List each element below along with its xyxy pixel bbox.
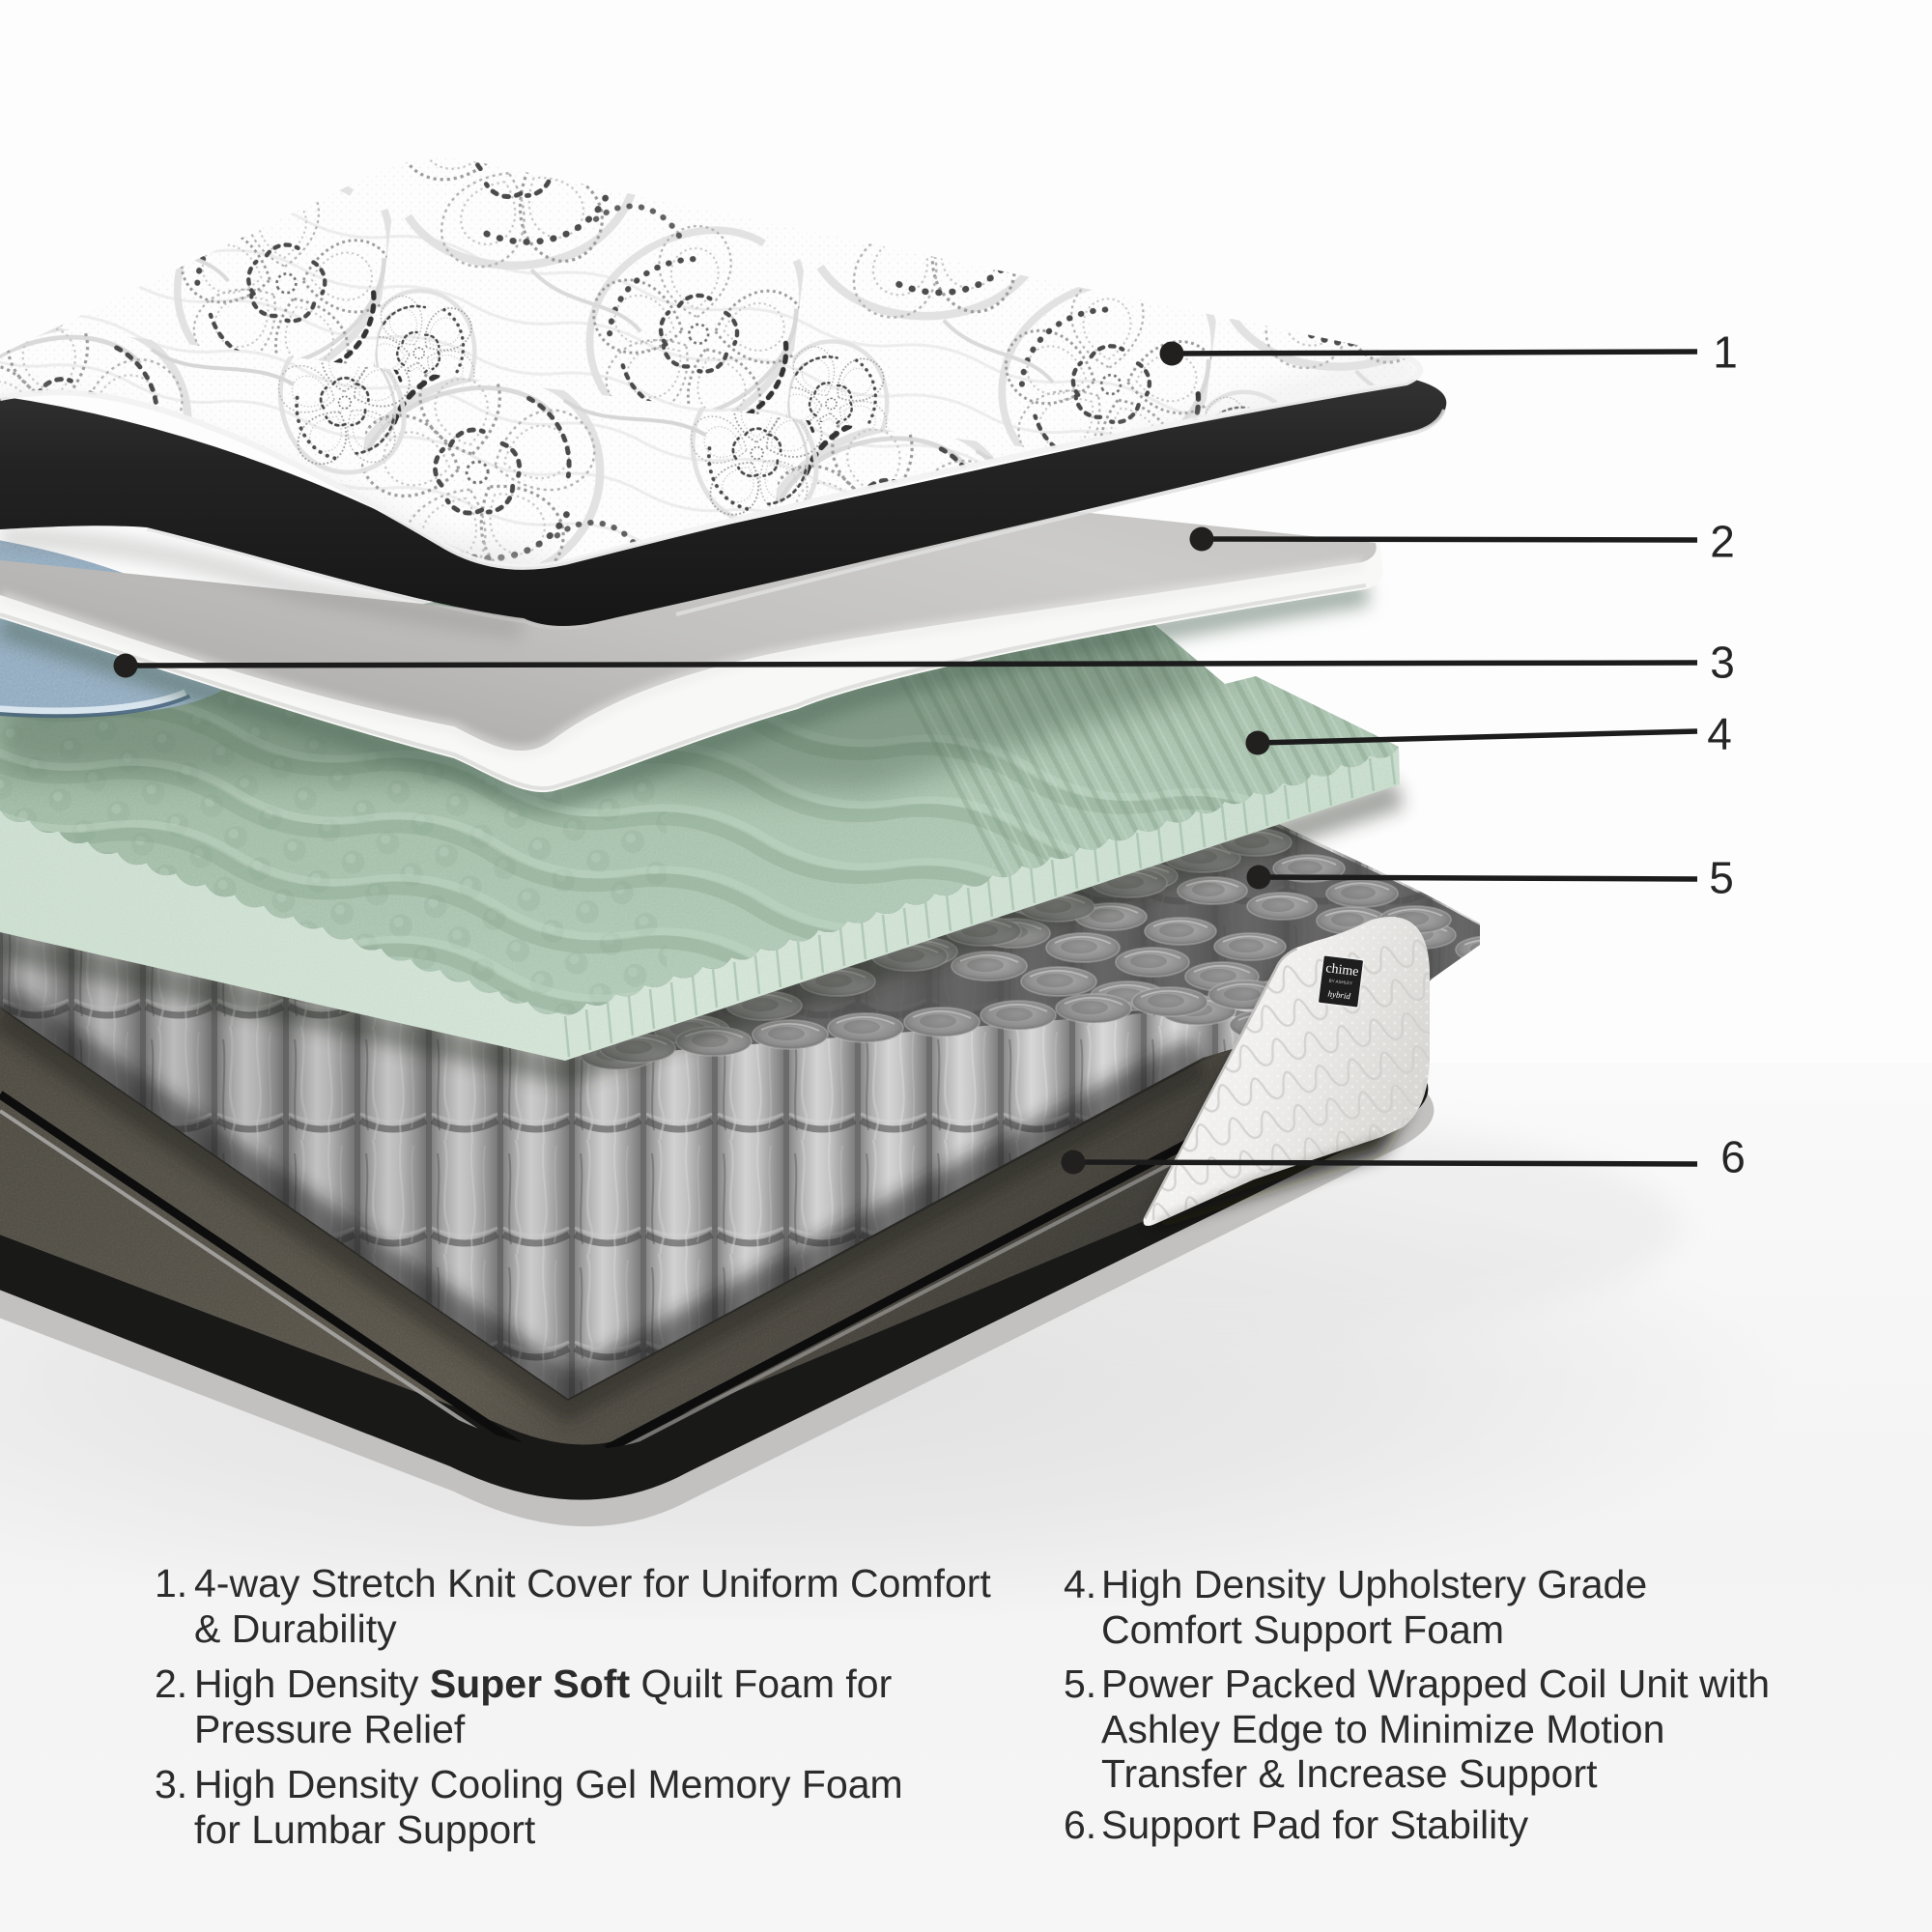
svg-text:Comfort Support Foam: Comfort Support Foam	[1101, 1607, 1504, 1652]
svg-text:5.: 5.	[1064, 1662, 1096, 1706]
svg-text:High Density Upholstery Grade: High Density Upholstery Grade	[1101, 1562, 1647, 1606]
svg-text:& Durability: & Durability	[194, 1606, 397, 1651]
svg-text:4: 4	[1707, 709, 1732, 759]
svg-text:4.: 4.	[1064, 1562, 1096, 1606]
svg-text:2.: 2.	[155, 1662, 187, 1706]
svg-text:for Lumbar Support: for Lumbar Support	[194, 1807, 536, 1852]
svg-text:Pressure Relief: Pressure Relief	[194, 1707, 466, 1751]
svg-text:High Density Cooling Gel Memor: High Density Cooling Gel Memory Foam	[194, 1762, 903, 1806]
svg-text:Power Packed Wrapped Coil Unit: Power Packed Wrapped Coil Unit with	[1101, 1662, 1770, 1706]
svg-text:3.: 3.	[155, 1762, 187, 1806]
svg-text:3: 3	[1710, 638, 1735, 688]
svg-text:6.: 6.	[1064, 1803, 1096, 1847]
svg-text:Ashley Edge to Minimize Motion: Ashley Edge to Minimize Motion	[1101, 1707, 1664, 1751]
svg-text:High Density Super Soft Quilt: High Density Super Soft Quilt Foam for	[194, 1662, 892, 1706]
svg-text:Support Pad for Stability: Support Pad for Stability	[1101, 1803, 1529, 1847]
svg-text:6: 6	[1720, 1132, 1746, 1182]
svg-text:2: 2	[1710, 517, 1735, 567]
svg-text:1: 1	[1713, 327, 1738, 378]
svg-text:5: 5	[1709, 853, 1734, 903]
svg-text:1.: 1.	[155, 1561, 187, 1605]
svg-text:Transfer & Increase Support: Transfer & Increase Support	[1101, 1751, 1598, 1796]
svg-text:4-way Stretch Knit Cover for U: 4-way Stretch Knit Cover for Uniform Com…	[194, 1561, 991, 1605]
